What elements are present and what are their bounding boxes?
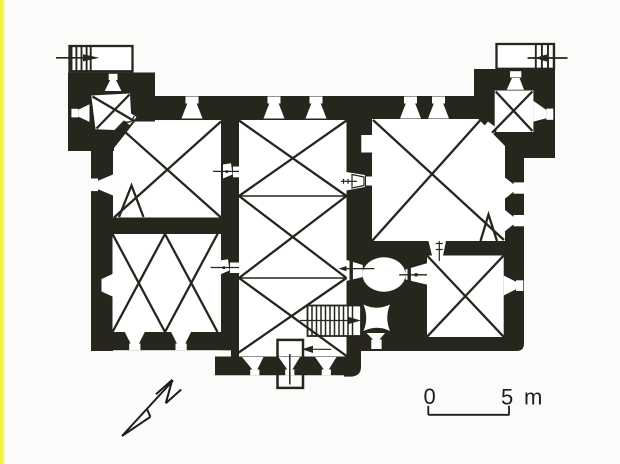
svg-text:m: m — [524, 385, 542, 410]
svg-text:5: 5 — [501, 385, 513, 410]
svg-text:0: 0 — [424, 384, 436, 409]
